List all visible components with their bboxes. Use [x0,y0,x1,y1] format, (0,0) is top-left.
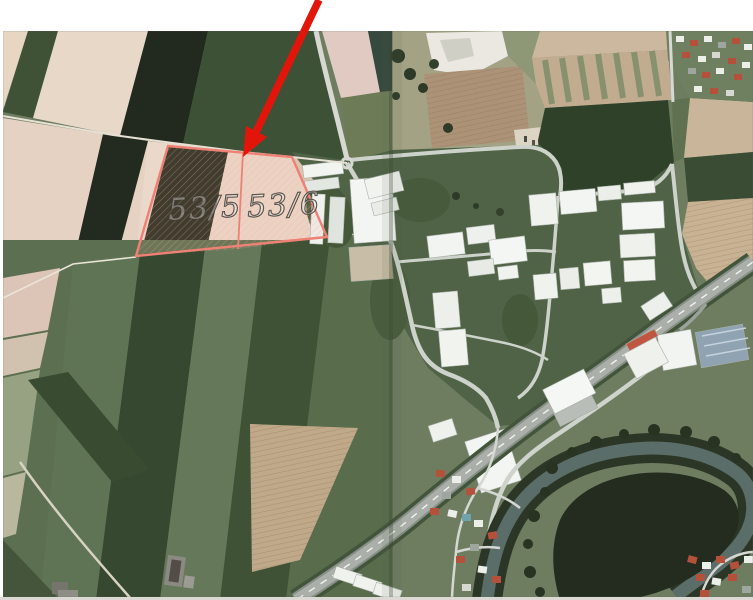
screenshot-aerial-parcel-map: 53/5 53/6 [0,0,753,600]
fold-seam [382,31,402,597]
aerial-photo-scene: 53/5 53/6 [0,0,753,600]
parcel-label-53-5: 53/5 [167,189,242,228]
parcel-label-53-6: 53/6 [246,186,321,225]
fields-bottom-left [3,230,392,600]
